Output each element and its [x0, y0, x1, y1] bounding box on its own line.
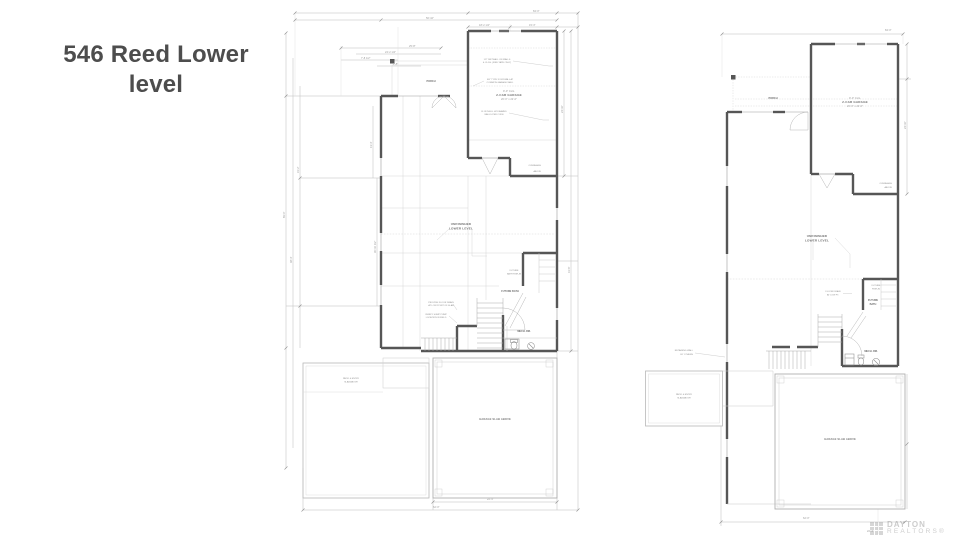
- toilet-icon: [511, 342, 517, 350]
- svg-text:84'-0": 84'-0": [885, 28, 892, 32]
- svg-text:7'-8 1/2": 7'-8 1/2": [361, 56, 371, 60]
- svg-text:24'-2 1/2": 24'-2 1/2": [385, 50, 396, 54]
- left-room-labels: PORCH 9'-0" CLG. 2-CAR GARAGE 20'-0" x 2…: [426, 80, 541, 333]
- page-title-line2: level: [28, 70, 284, 100]
- svg-text:AT LOW PT.: AT LOW PT.: [827, 294, 839, 297]
- right-slab-outlines: [646, 371, 906, 509]
- left-bath-partitions: [503, 253, 557, 351]
- svg-text:FUTURE: FUTURE: [872, 285, 881, 287]
- svg-text:24'-10": 24'-10": [560, 105, 564, 113]
- svg-text:PROVIDE FLOOR DRAIN: PROVIDE FLOOR DRAIN: [428, 301, 454, 304]
- svg-text:62'-0": 62'-0": [433, 505, 440, 509]
- svg-text:FUTURE: FUTURE: [868, 299, 878, 302]
- svg-text:PORCH: PORCH: [768, 97, 777, 100]
- svg-text:MECH. RM.: MECH. RM.: [517, 330, 531, 333]
- svg-text:24'-10": 24'-10": [903, 121, 907, 129]
- right-room-labels: PORCH 9'-0" CLG. 2-CAR GARAGE 20'-0" x 2…: [768, 96, 892, 353]
- svg-text:SLAB ABOVE: SLAB ABOVE: [677, 397, 691, 400]
- toilet-icon: [858, 358, 864, 365]
- svg-text:15'-3": 15'-3": [529, 23, 536, 27]
- left-slab-labels: PATIO & ENTRY SLAB ABOVE GARAGE SLAB ABO…: [343, 377, 511, 421]
- svg-text:BATH RGH-IN: BATH RGH-IN: [507, 273, 521, 276]
- svg-text:FUTURE: FUTURE: [510, 270, 519, 272]
- svg-text:31'-2": 31'-2": [296, 166, 300, 173]
- svg-text:UNFINISHED: UNFINISHED: [451, 222, 472, 226]
- svg-text:62'-0": 62'-0": [803, 516, 810, 520]
- right-stairs: [766, 314, 842, 369]
- svg-text:VERIFY SUMP PUMP: VERIFY SUMP PUMP: [425, 314, 447, 316]
- svg-text:2-CAR GARAGE: 2-CAR GARAGE: [496, 93, 522, 97]
- svg-text:GARAGE SLAB ABOVE: GARAGE SLAB ABOVE: [824, 437, 856, 441]
- svg-text:LOWER LEVEL: LOWER LEVEL: [449, 227, 473, 231]
- svg-text:18'-2 1/2": 18'-2 1/2": [479, 23, 490, 27]
- svg-text:PORCH: PORCH: [426, 80, 435, 83]
- left-bath-fixtures: [505, 339, 534, 349]
- left-walls: [381, 31, 557, 351]
- svg-text:13'-4": 13'-4": [369, 141, 373, 148]
- svg-text:5/8" TYPE X DRYWALL AT: 5/8" TYPE X DRYWALL AT: [487, 78, 514, 81]
- svg-text:20'-0" x 22'-0": 20'-0" x 22'-0": [501, 97, 517, 101]
- svg-text:48'-4": 48'-4": [289, 256, 293, 263]
- right-walls: [727, 44, 898, 504]
- svg-text:RETAINING WALL: RETAINING WALL: [675, 349, 694, 352]
- floor-plan-right: 84'-0" 24'-10" 62'-0" 22'-4": [645, 14, 913, 538]
- right-wall-openings: [727, 44, 887, 504]
- svg-text:BY OTHERS: BY OTHERS: [680, 354, 693, 356]
- svg-text:ABOVE: ABOVE: [533, 170, 541, 173]
- svg-text:AT LOW POINT OF SLAB: AT LOW POINT OF SLAB: [428, 304, 454, 307]
- left-slab-outlines: [303, 358, 557, 498]
- svg-text:LOWER LEVEL: LOWER LEVEL: [805, 239, 829, 243]
- svg-text:41'-6": 41'-6": [567, 266, 571, 273]
- svg-text:PATIO & ENTRY: PATIO & ENTRY: [676, 393, 693, 396]
- svg-text:FUTURE BATH: FUTURE BATH: [501, 290, 519, 293]
- watermark-subbrand: REALTORS®: [887, 529, 946, 536]
- svg-text:69'-0": 69'-0": [282, 211, 286, 218]
- svg-text:30'-10 1/2": 30'-10 1/2": [373, 241, 377, 253]
- page-title-line1: 546 Reed Lower: [28, 40, 284, 70]
- right-bath-partitions: [881, 279, 896, 310]
- svg-text:LOCATION IN FIELD: LOCATION IN FIELD: [426, 316, 447, 319]
- svg-text:25'-8": 25'-8": [409, 44, 416, 48]
- svg-text:GARAGE SLAB ABOVE: GARAGE SLAB ABOVE: [479, 417, 511, 421]
- svg-text:56'-10": 56'-10": [426, 16, 434, 20]
- left-dimension-texts: 84'-0" 56'-10" 18'-2 1/2" 15'-3" 25'-8" …: [282, 9, 571, 509]
- svg-text:UNFINISHED: UNFINISHED: [807, 234, 828, 238]
- svg-text:FLOOR DRAIN: FLOOR DRAIN: [826, 290, 841, 293]
- svg-text:& CLGS. (FIRE TAPE ONLY): & CLGS. (FIRE TAPE ONLY): [483, 61, 511, 64]
- svg-text:OVERHANG: OVERHANG: [879, 182, 892, 185]
- realtor-watermark: DAYTON REALTORS®: [870, 521, 946, 536]
- left-porch-post: [390, 59, 395, 64]
- svg-text:R-13 INSUL. AT FRAMED: R-13 INSUL. AT FRAMED: [481, 110, 507, 113]
- svg-text:WALLS PER CODE: WALLS PER CODE: [484, 113, 504, 116]
- svg-text:1/2" DRYWALL ON WALLS: 1/2" DRYWALL ON WALLS: [484, 58, 511, 61]
- left-dimension-ticks: [285, 12, 580, 512]
- svg-text:BATH: BATH: [870, 303, 877, 306]
- floor-plan-left: 84'-0" 56'-10" 18'-2 1/2" 15'-3" 25'-8" …: [281, 8, 581, 518]
- right-bath-fixtures: [845, 354, 880, 366]
- svg-text:PATIO & ENTRY: PATIO & ENTRY: [343, 377, 360, 380]
- right-porch-post: [731, 75, 736, 80]
- svg-text:20'-0" x 22'-0": 20'-0" x 22'-0": [847, 104, 863, 108]
- svg-text:MECH. RM.: MECH. RM.: [864, 350, 878, 353]
- svg-text:2-CAR GARAGE: 2-CAR GARAGE: [842, 100, 868, 104]
- svg-text:COMMON GARAGE WALL: COMMON GARAGE WALL: [487, 81, 514, 84]
- left-door-swings: [432, 96, 526, 330]
- right-slab-labels: PATIO & ENTRY SLAB ABOVE GARAGE SLAB ABO…: [676, 393, 856, 441]
- left-dimension-lines: [286, 13, 578, 510]
- svg-text:RGH-IN: RGH-IN: [872, 289, 880, 291]
- right-dimension-lines: [721, 34, 911, 534]
- grid-logo-icon: [870, 522, 883, 535]
- right-door-swings: [790, 112, 866, 356]
- right-interior-lines: [727, 77, 898, 366]
- svg-text:84'-0": 84'-0": [533, 9, 540, 13]
- page-title: 546 Reed Lower level: [28, 40, 284, 100]
- svg-text:ABOVE: ABOVE: [884, 186, 892, 189]
- svg-text:OVERHANG: OVERHANG: [528, 164, 541, 167]
- svg-text:SLAB ABOVE: SLAB ABOVE: [344, 381, 358, 384]
